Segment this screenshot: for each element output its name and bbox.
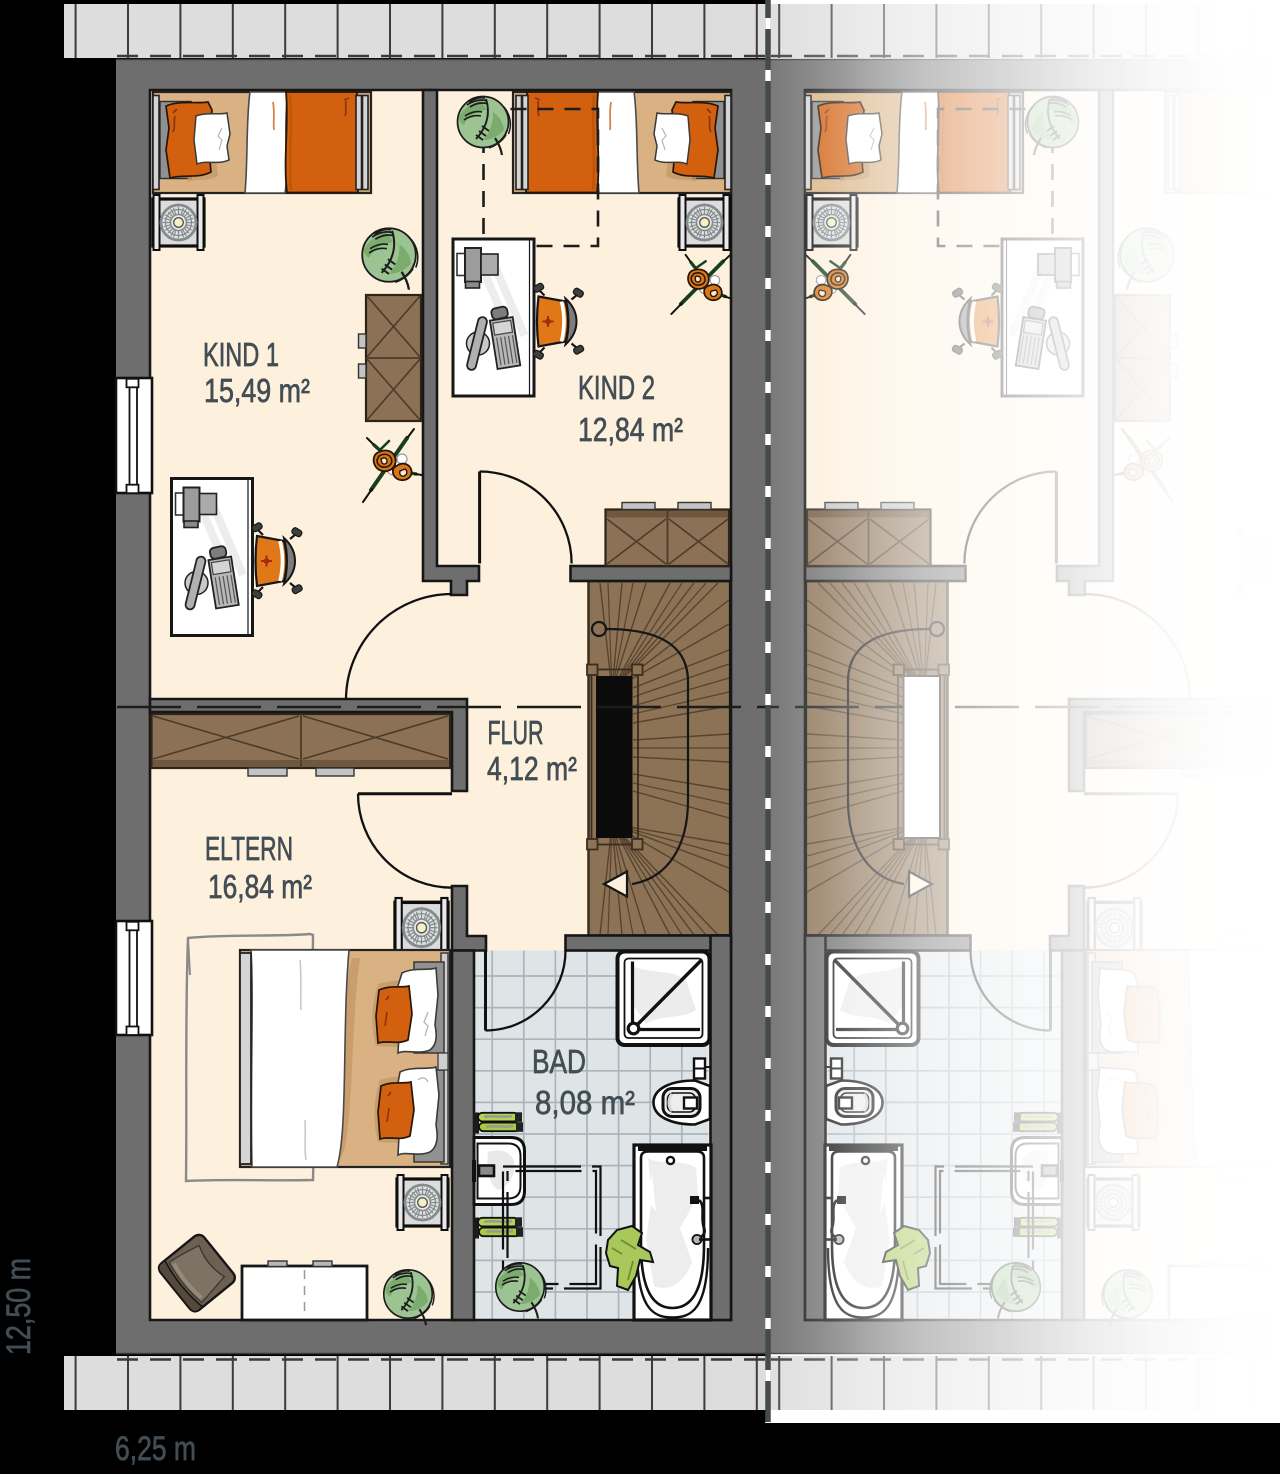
svg-text:16,84 m²: 16,84 m² xyxy=(208,868,312,905)
svg-text:FLUR: FLUR xyxy=(488,714,544,751)
svg-text:KIND 2: KIND 2 xyxy=(578,369,655,406)
svg-text:4,12 m²: 4,12 m² xyxy=(487,750,577,787)
svg-text:BAD: BAD xyxy=(532,1043,586,1080)
svg-text:12,84 m²: 12,84 m² xyxy=(578,411,683,448)
svg-text:6,25 m: 6,25 m xyxy=(115,1430,196,1468)
svg-text:KIND 1: KIND 1 xyxy=(203,336,279,373)
svg-text:12,50 m: 12,50 m xyxy=(0,1258,38,1355)
svg-text:8,08 m²: 8,08 m² xyxy=(535,1084,635,1121)
svg-text:15,49 m²: 15,49 m² xyxy=(204,372,310,409)
svg-text:ELTERN: ELTERN xyxy=(205,830,293,867)
